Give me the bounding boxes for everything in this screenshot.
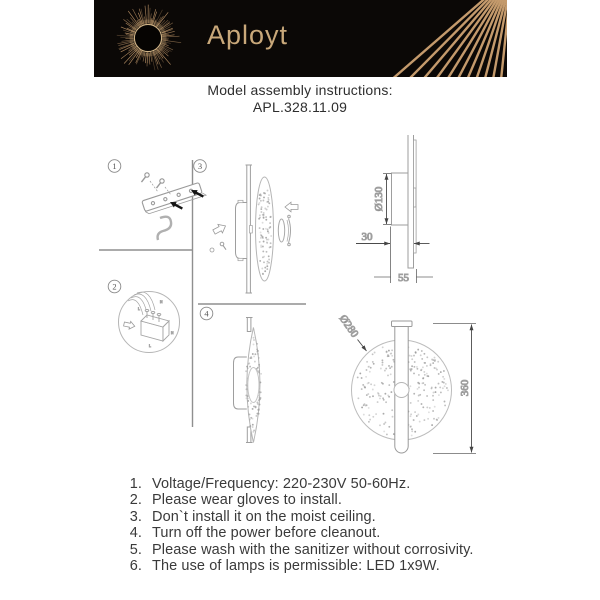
brand-logo-text: Aployt	[207, 20, 288, 51]
step-number: 1	[112, 161, 116, 171]
instruction-text: Please wash with the sanitizer without c…	[152, 542, 474, 558]
sunburst-center	[135, 25, 161, 51]
clip-piece	[287, 215, 291, 246]
front-view-dimension-drawing: 360 Ø280	[337, 313, 476, 454]
model-number: APL.328.11.09	[0, 99, 600, 116]
screw-icon	[140, 172, 150, 184]
instruction-list: 1.Voltage/Frequency: 220-230V 50-60Hz.2.…	[120, 476, 474, 574]
instruction-item: 4.Turn off the power before cleanout.	[120, 525, 474, 541]
dimension-label-dia130: Ø130	[373, 186, 385, 211]
screw-icon	[155, 178, 165, 190]
disc-hole	[248, 368, 259, 403]
assembly-diagram: 1 2 3 4	[90, 135, 520, 475]
dimension-label-30: 30	[362, 231, 374, 243]
retainer-ring	[278, 219, 284, 242]
title-block: Model assembly instructions: APL.328.11.…	[0, 82, 600, 116]
wall-plate	[408, 135, 414, 268]
mounting-box	[392, 173, 409, 225]
instruction-text: Turn off the power before cleanout.	[152, 525, 380, 541]
glass-disc	[256, 177, 274, 281]
wall-plate-top	[247, 318, 251, 332]
wire-label-n: N	[160, 300, 163, 304]
dimension-label-dia280: Ø280	[337, 313, 361, 340]
brand-header-bar: Aployt	[94, 0, 507, 77]
instruction-item: 6.The use of lamps is permissible: LED 1…	[120, 558, 474, 574]
mounting-box	[236, 203, 247, 259]
instruction-number: 1.	[120, 476, 142, 492]
instruction-number: 4.	[120, 525, 142, 541]
instruction-item: 2.Please wear gloves to install.	[120, 492, 474, 508]
instruction-number: 3.	[120, 509, 142, 525]
direction-arrow-icon	[123, 320, 135, 330]
header-decor	[94, 0, 507, 77]
instruction-text: Don`t install it on the moist ceiling.	[152, 509, 376, 525]
wire-label-l: L	[138, 307, 140, 311]
mounting-box	[234, 357, 247, 409]
page-title: Model assembly instructions:	[0, 82, 600, 99]
side-view-dimension-drawing: Ø130 30 55	[356, 135, 433, 284]
instruction-text: The use of lamps is permissible: LED 1x9…	[152, 558, 440, 574]
dimension-label-55: 55	[398, 272, 410, 284]
connector-stub	[250, 226, 253, 234]
direction-arrow-icon	[212, 222, 228, 237]
step-number: 3	[198, 161, 202, 171]
instruction-number: 5.	[120, 542, 142, 558]
instruction-item: 1.Voltage/Frequency: 220-230V 50-60Hz.	[120, 476, 474, 492]
instruction-item: 5.Please wash with the sanitizer without…	[120, 542, 474, 558]
step2-wiring-diagram: N L N L	[119, 292, 180, 353]
tube-cap	[392, 321, 413, 327]
step4-assembled-diagram	[234, 318, 262, 443]
instruction-item: 3.Don`t install it on the moist ceiling.	[120, 509, 474, 525]
instruction-text: Please wear gloves to install.	[152, 492, 342, 508]
screw-icon	[219, 241, 227, 250]
direction-arrow-icon	[285, 202, 298, 212]
instruction-text: Voltage/Frequency: 220-230V 50-60Hz.	[152, 476, 410, 492]
wire-label-n: N	[171, 331, 174, 335]
dimension-label-360: 360	[459, 379, 471, 396]
hub-circle	[394, 383, 409, 398]
divider-lines	[99, 160, 306, 427]
wire-label-l: L	[149, 344, 151, 348]
instruction-number: 6.	[120, 558, 142, 574]
glass-disc	[246, 328, 262, 443]
step1-bracket-diagram	[140, 172, 206, 240]
corner-rays-decoration	[338, 0, 507, 77]
step-number: 2	[112, 282, 116, 292]
instruction-number: 2.	[120, 492, 142, 508]
step3-exploded-diagram	[210, 165, 298, 293]
